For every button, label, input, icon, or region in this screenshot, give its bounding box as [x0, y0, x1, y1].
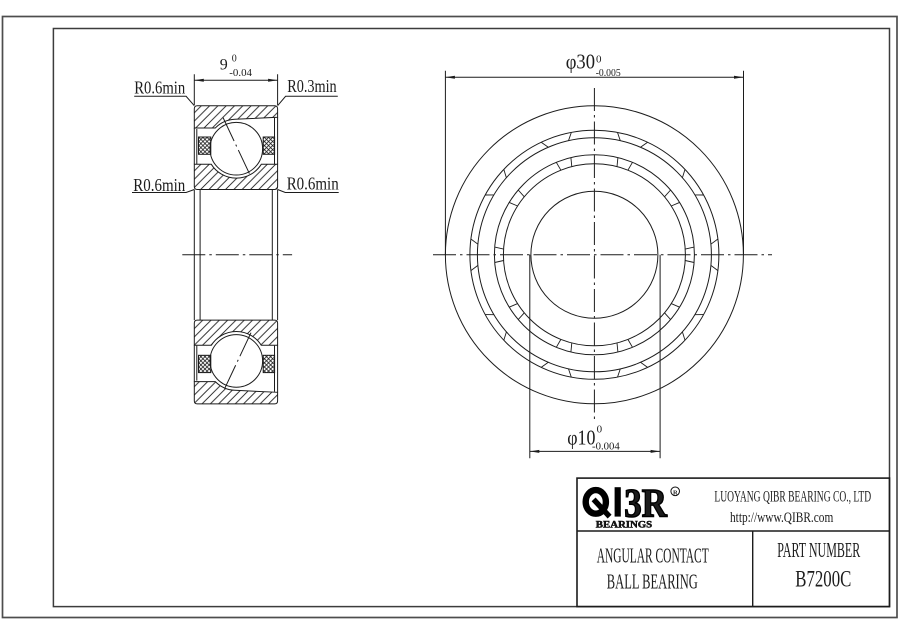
svg-text:B7200C: B7200C	[795, 567, 851, 593]
svg-text:R0.6min: R0.6min	[287, 174, 339, 194]
svg-text:http://www.QIBR.com: http://www.QIBR.com	[730, 510, 834, 526]
svg-text:LUOYANG QIBR BEARING CO., LTD: LUOYANG QIBR BEARING CO., LTD	[714, 489, 871, 506]
svg-text:PART NUMBER: PART NUMBER	[777, 538, 860, 562]
svg-text:0: 0	[232, 54, 237, 65]
svg-text:BEARINGS: BEARINGS	[596, 519, 652, 530]
svg-text:-0.005: -0.005	[596, 67, 621, 79]
svg-text:φ30: φ30	[566, 50, 595, 74]
svg-text:0: 0	[596, 53, 602, 65]
svg-text:ANGULAR CONTACT: ANGULAR CONTACT	[597, 543, 709, 567]
svg-text:0: 0	[597, 423, 603, 435]
svg-text:-0.04: -0.04	[229, 68, 252, 79]
svg-text:R0.3min: R0.3min	[287, 76, 337, 96]
svg-text:R: R	[673, 489, 678, 496]
svg-text:R0.6min: R0.6min	[134, 78, 185, 98]
svg-text:-0.004: -0.004	[592, 441, 620, 453]
svg-text:9: 9	[220, 56, 228, 73]
svg-text:BALL BEARING: BALL BEARING	[607, 570, 698, 594]
